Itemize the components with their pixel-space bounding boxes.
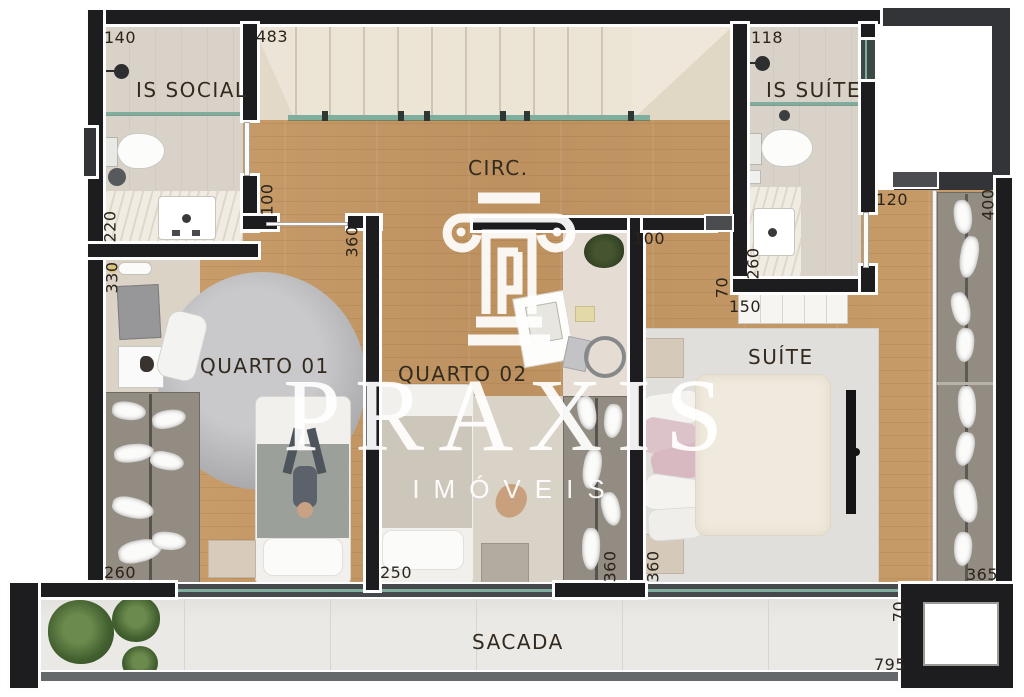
sliding-door-suite bbox=[643, 584, 903, 597]
dim-330: 330 bbox=[103, 248, 122, 308]
label-suite: SUÍTE bbox=[748, 345, 814, 369]
stairs bbox=[295, 24, 632, 120]
wall-left bbox=[88, 10, 103, 590]
dim-365: 365 bbox=[966, 565, 998, 584]
wall-lamp bbox=[118, 262, 152, 275]
wall-left-recess bbox=[84, 128, 96, 176]
dim-140: 140 bbox=[104, 28, 136, 47]
rail-post bbox=[398, 111, 404, 121]
suite-nightstand bbox=[644, 338, 684, 378]
wall-issuite-right-c bbox=[861, 266, 875, 292]
shower-arm bbox=[747, 62, 757, 64]
person-head bbox=[297, 502, 313, 518]
q2-blanket bbox=[374, 416, 472, 528]
sliding-door-bedrooms bbox=[173, 584, 557, 597]
plant bbox=[584, 234, 624, 268]
dim-795: 795 bbox=[874, 655, 906, 674]
shower-head-icon bbox=[755, 56, 770, 71]
rail-post bbox=[424, 111, 430, 121]
office-chair bbox=[584, 336, 626, 378]
dim-360-q1: 360 bbox=[343, 212, 362, 272]
dim-483: 483 bbox=[256, 27, 288, 46]
rail-post bbox=[628, 111, 634, 121]
void-room-inner bbox=[876, 26, 992, 172]
dim-100-suite: 100 bbox=[633, 229, 665, 248]
pillar-inner bbox=[923, 602, 999, 666]
art-blob bbox=[140, 356, 154, 372]
q1-nightstand bbox=[208, 540, 256, 578]
floor-plan: IS SOCIAL CIRC. IS SUÍTE QUARTO 01 QUART… bbox=[0, 0, 1024, 697]
tv-mount bbox=[852, 448, 860, 456]
faucet-icon bbox=[768, 228, 777, 237]
dim-118: 118 bbox=[751, 28, 783, 47]
dim-150: 150 bbox=[729, 297, 761, 316]
laptop bbox=[525, 302, 563, 345]
shower-arm bbox=[103, 70, 116, 72]
wall-top bbox=[88, 10, 880, 24]
dim-400: 400 bbox=[979, 175, 998, 235]
label-quarto02: QUARTO 02 bbox=[398, 362, 528, 386]
wall-q2-suite bbox=[630, 218, 643, 590]
void-gap bbox=[874, 168, 894, 190]
dim-70-sacada: 70 bbox=[890, 582, 909, 642]
dim-120: 120 bbox=[876, 190, 908, 209]
dim-360-q2ward: 360 bbox=[601, 537, 620, 597]
sacada-railing bbox=[30, 672, 903, 681]
shower-head-icon bbox=[114, 64, 129, 79]
faucet-handle bbox=[172, 230, 180, 236]
toilet-bowl bbox=[117, 133, 165, 169]
wall-issocial-right-top bbox=[243, 24, 257, 120]
suite-duvet bbox=[695, 374, 831, 536]
wall-right bbox=[996, 178, 1012, 590]
shower-glass bbox=[749, 102, 859, 105]
label-sacada: SACADA bbox=[472, 630, 564, 654]
window-issuite bbox=[861, 40, 875, 84]
toilet-bowl bbox=[761, 129, 813, 167]
shower-glass bbox=[105, 112, 243, 115]
wall-q2-top bbox=[473, 218, 640, 230]
closet-front bbox=[932, 190, 937, 585]
plant bbox=[112, 596, 160, 642]
door-quarto01 bbox=[266, 222, 348, 226]
dim-360-suite: 360 bbox=[644, 537, 663, 597]
stair-landing-right bbox=[632, 24, 735, 120]
door-issocial bbox=[244, 122, 250, 176]
label-quarto01: QUARTO 01 bbox=[200, 354, 330, 378]
dim-260-issuite: 260 bbox=[744, 234, 763, 294]
plant bbox=[48, 600, 114, 664]
dim-100-stairs: 100 bbox=[258, 170, 277, 230]
label-circ: CIRC. bbox=[468, 156, 529, 180]
stair-glass-rail bbox=[288, 115, 650, 120]
q1-pillow bbox=[263, 538, 343, 576]
corridor-door bbox=[893, 172, 937, 187]
label-is-suite: IS SUÍTE bbox=[766, 78, 861, 102]
rail-post bbox=[322, 111, 328, 121]
wall-issuite-right-b bbox=[861, 82, 875, 212]
wall-q1q2 bbox=[366, 216, 379, 590]
door-issuite bbox=[863, 212, 869, 268]
faucet-icon bbox=[779, 110, 790, 121]
desk-tablet bbox=[117, 284, 162, 340]
faucet-handle bbox=[192, 230, 200, 236]
rail-post bbox=[524, 111, 530, 121]
closet-divider bbox=[937, 382, 998, 385]
faucet-icon bbox=[182, 214, 191, 223]
door-suite bbox=[706, 216, 732, 230]
wall-sacada-left bbox=[10, 583, 38, 688]
floor-drain bbox=[108, 168, 126, 186]
dim-250: 250 bbox=[380, 563, 412, 582]
rail-post bbox=[500, 111, 506, 121]
paper-holder bbox=[749, 170, 761, 184]
dim-260-wardrobe: 260 bbox=[104, 563, 136, 582]
label-is-social: IS SOCIAL bbox=[136, 78, 248, 102]
bench bbox=[481, 543, 529, 583]
notepad bbox=[575, 306, 595, 322]
